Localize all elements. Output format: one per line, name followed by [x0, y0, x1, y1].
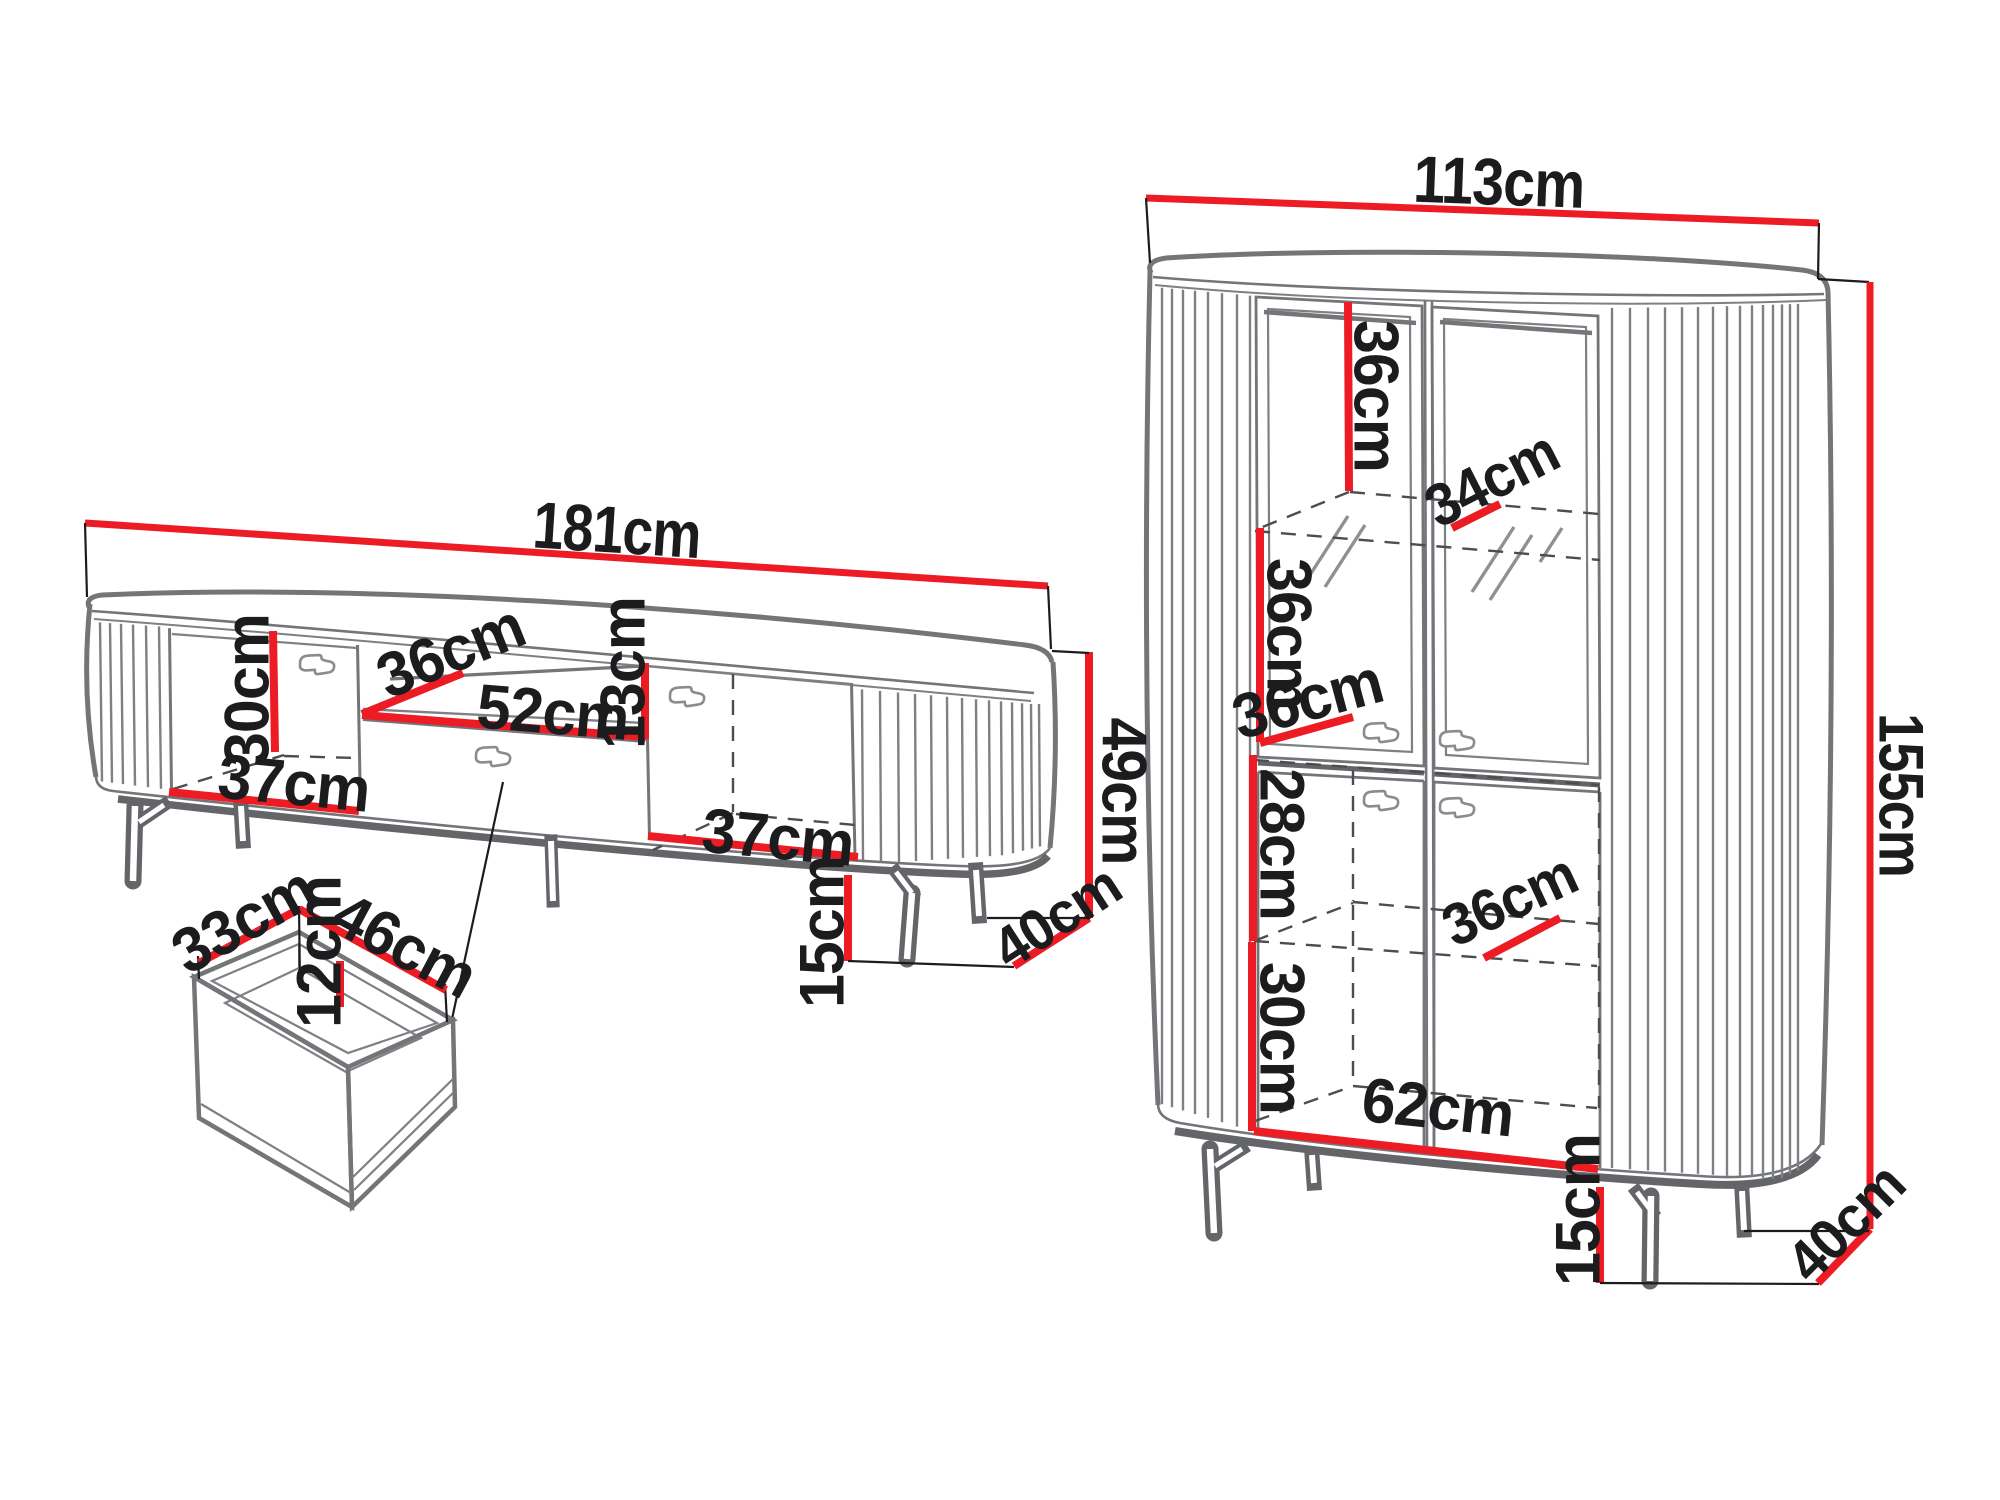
svg-text:155cm: 155cm	[1865, 713, 1935, 877]
svg-text:30cm: 30cm	[1246, 962, 1316, 1114]
svg-text:37cm: 37cm	[215, 742, 373, 826]
svg-text:28cm: 28cm	[1246, 768, 1316, 920]
svg-text:15cm: 15cm	[1544, 1134, 1614, 1286]
svg-text:12cm: 12cm	[285, 876, 355, 1028]
svg-text:15cm: 15cm	[788, 856, 858, 1008]
svg-text:49cm: 49cm	[1088, 718, 1158, 865]
svg-text:36cm: 36cm	[1340, 320, 1410, 472]
svg-text:181cm: 181cm	[531, 487, 703, 572]
svg-text:113cm: 113cm	[1412, 142, 1586, 222]
svg-text:13cm: 13cm	[589, 597, 659, 749]
